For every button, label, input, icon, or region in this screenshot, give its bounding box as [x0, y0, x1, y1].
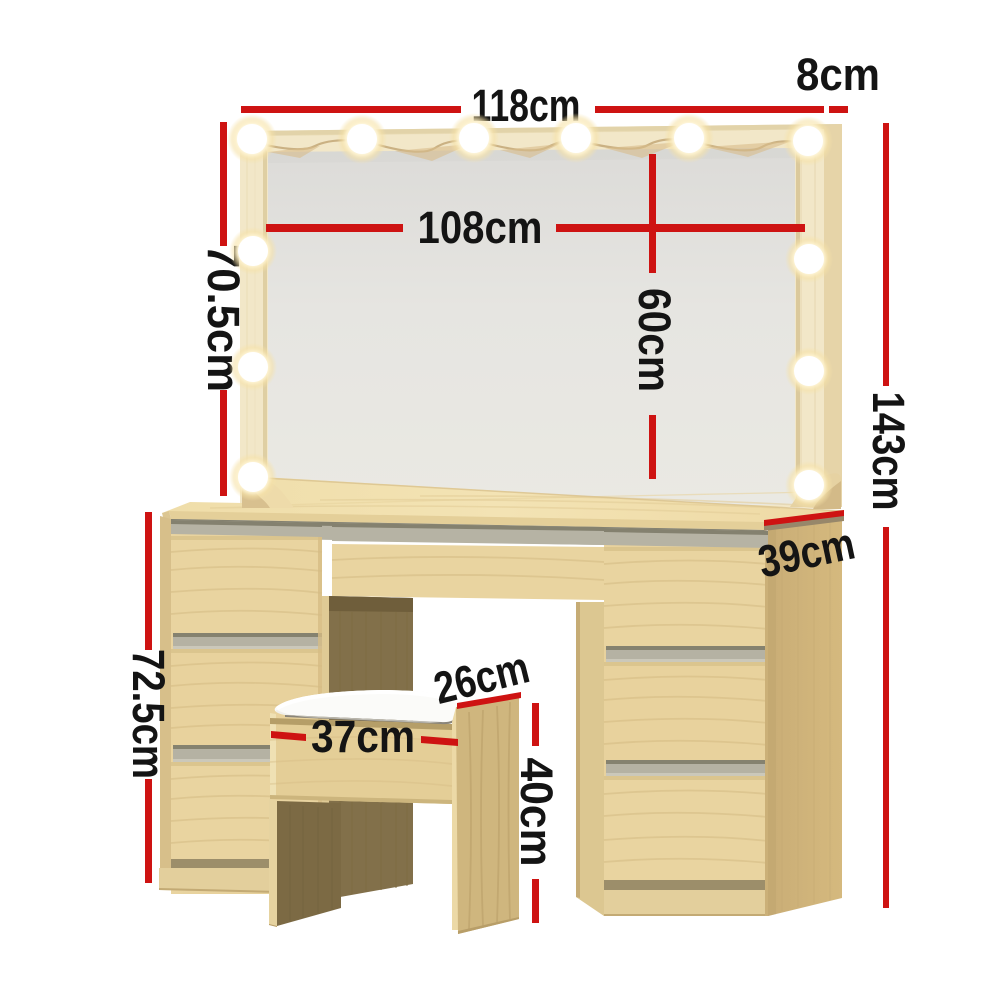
svg-text:108cm: 108cm: [418, 202, 543, 253]
svg-text:143cm: 143cm: [863, 392, 914, 511]
svg-text:37cm: 37cm: [311, 711, 415, 762]
svg-text:72.5cm: 72.5cm: [123, 649, 174, 779]
svg-text:8cm: 8cm: [796, 49, 880, 100]
svg-text:60cm: 60cm: [629, 288, 680, 392]
svg-text:40cm: 40cm: [511, 758, 562, 867]
